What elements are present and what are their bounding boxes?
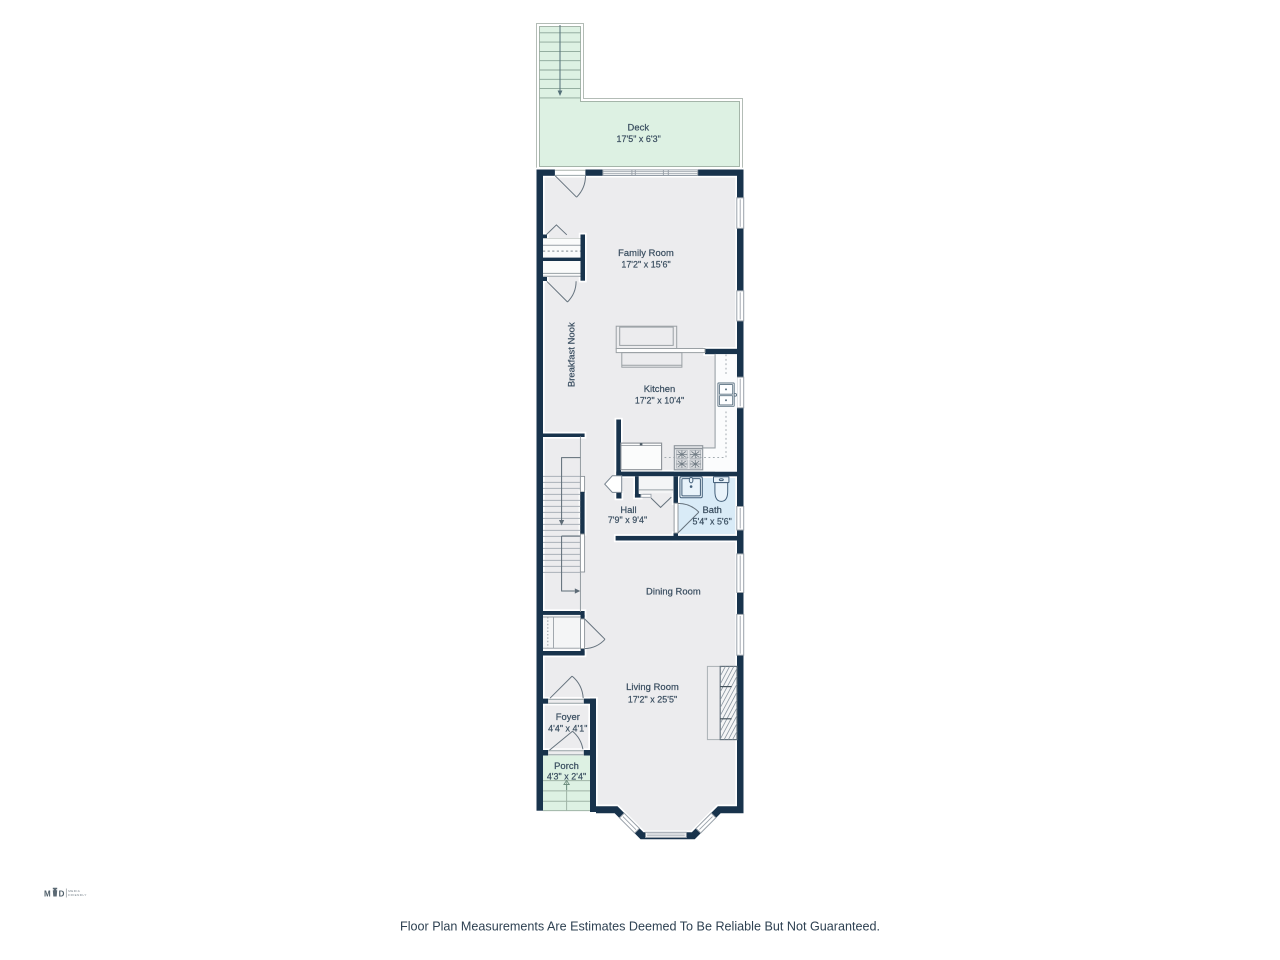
svg-text:D: D — [59, 890, 65, 899]
svg-text:7'9" x 9'4": 7'9" x 9'4" — [608, 515, 647, 525]
svg-text:17'5" x 6'3": 17'5" x 6'3" — [617, 134, 661, 144]
svg-text:Bath: Bath — [702, 504, 722, 515]
svg-text:4'3" x 2'4": 4'3" x 2'4" — [547, 772, 586, 782]
svg-text:Breakfast Nook: Breakfast Nook — [566, 322, 577, 387]
svg-text:Porch: Porch — [554, 760, 579, 771]
svg-text:Living Room: Living Room — [626, 681, 679, 692]
svg-text:Foyer: Foyer — [556, 711, 580, 722]
svg-text:17'2" x 10'4": 17'2" x 10'4" — [635, 395, 684, 405]
svg-text:5'4" x 5'6": 5'4" x 5'6" — [693, 516, 732, 526]
svg-text:FRIENDLY: FRIENDLY — [68, 893, 87, 897]
svg-text:Floor Plan Measurements Are Es: Floor Plan Measurements Are Estimates De… — [400, 919, 880, 933]
svg-text:Hall: Hall — [620, 504, 636, 515]
svg-text:17'2" x 15'6": 17'2" x 15'6" — [621, 260, 670, 270]
svg-text:17'2" x 25'5": 17'2" x 25'5" — [628, 694, 677, 704]
svg-text:4'4" x 4'1": 4'4" x 4'1" — [548, 723, 587, 733]
svg-text:Kitchen: Kitchen — [644, 383, 676, 394]
svg-text:Dining Room: Dining Room — [646, 586, 701, 597]
svg-text:Deck: Deck — [628, 122, 650, 133]
svg-text:M: M — [44, 890, 51, 899]
svg-text:Family Room: Family Room — [618, 247, 674, 258]
